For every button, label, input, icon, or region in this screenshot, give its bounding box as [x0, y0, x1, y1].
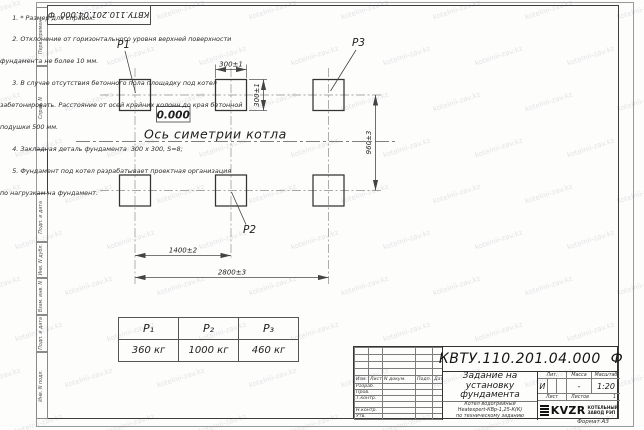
kvzr-logo-icon — [540, 405, 549, 416]
load-header-p3: P₃ — [239, 318, 299, 340]
title-line: фундамента — [460, 391, 520, 401]
massa-label: Масса — [567, 372, 592, 379]
doc-number: КВТУ.110.201.04.000 Ф — [442, 347, 619, 372]
list-label: Лист — [538, 394, 567, 401]
load-header-p2: P₂ — [179, 318, 239, 340]
load-value-p2: 1000 кг — [179, 340, 239, 362]
leader-p3 — [331, 50, 357, 91]
company-cell: KVZR КОТЕЛЬНЫЙ ЗАВОД РЭП — [538, 401, 620, 420]
masshtab-label: Масштаб — [592, 372, 620, 379]
note-line: фундамента не более 10 мм. — [0, 58, 256, 65]
point-label-p2: P2 — [243, 224, 256, 236]
lit-label: Лит. — [538, 372, 567, 379]
listov-label: Листов — [571, 394, 589, 400]
lit-value-cell: И — [538, 379, 567, 394]
listov-cell: Листов 1 — [567, 394, 620, 401]
listov-value: 1 — [613, 394, 616, 400]
lit-value: И — [538, 379, 547, 393]
masshtab-value: 1:20 — [592, 379, 620, 394]
load-value-p1: 360 кг — [119, 340, 179, 362]
change-header-row: Изм. Лист N докум. Подп. Дата — [355, 376, 443, 384]
note-line: забетонировать. Расстояние от осей крайн… — [0, 102, 256, 109]
product-description: Котел водогрейный Heatexpert-КВр-1,25-К(… — [442, 401, 537, 420]
note-line: 5. Фундамент под котел разрабатывает про… — [0, 168, 256, 175]
drawing-title: Задание на установку фундамента — [442, 372, 537, 401]
drawing-sheet: kotelnii-zav.kzkotelnii-zav.kzkotelnii-z… — [0, 0, 644, 430]
point-label-p3: P3 — [352, 37, 365, 49]
load-value-p3: 460 кг — [239, 340, 299, 362]
format-label: Формат А3 — [548, 419, 638, 425]
note-line: подушки 500 мм. — [0, 124, 256, 131]
col-izm: Изм. — [355, 376, 369, 384]
kvzr-logo-text: KVZR — [551, 404, 586, 417]
note-line: 1. * Размер для справок. — [0, 15, 256, 22]
load-table-header-row: P₁ P₂ P₃ — [119, 318, 299, 340]
dim-text-2800: 2800±3 — [218, 269, 246, 277]
note-line: по нагрузкам на фундамент. — [0, 190, 256, 197]
dim-text-960: 960±3 — [365, 131, 373, 155]
col-ndoc: N докум. — [383, 376, 416, 384]
title-block-right: Лит. Масса Масштаб И - 1:20 Лист Листов … — [537, 372, 619, 420]
company-name-line2: ЗАВОД РЭП — [587, 411, 618, 416]
massa-value: - — [567, 379, 592, 394]
col-podp: Подп. — [416, 376, 433, 384]
change-row — [355, 355, 443, 362]
change-row — [355, 362, 443, 369]
change-row — [355, 348, 443, 355]
load-table: P₁ P₂ P₃ 360 кг 1000 кг 460 кг — [118, 317, 299, 362]
company-name: КОТЕЛЬНЫЙ ЗАВОД РЭП — [587, 406, 618, 416]
row-utv: Утв. — [355, 414, 383, 420]
col-list: Лист — [369, 376, 383, 384]
col-data: Дата — [433, 376, 443, 384]
change-row — [355, 369, 443, 376]
dim-text-1400: 1400±2 — [169, 247, 198, 255]
product-line: по техническому заданию — [456, 414, 524, 420]
title-block: Изм. Лист N докум. Подп. Дата Разраб. Пр… — [353, 346, 618, 419]
notes-block: 1. * Размер для справок. 2. Отклонение о… — [0, 0, 256, 212]
note-line: 2. Отклонение от горизонтального уровня … — [0, 36, 256, 43]
lit-sub-3 — [556, 379, 566, 393]
lit-sub-2 — [547, 379, 557, 393]
note-line: 3. В случае отсутствия бетонного пола пл… — [0, 80, 256, 87]
load-table-value-row: 360 кг 1000 кг 460 кг — [119, 340, 299, 362]
load-header-p1: P₁ — [119, 318, 179, 340]
note-line: 4. Закладная деталь фундамента 300 х 300… — [0, 146, 256, 153]
change-log-table: Изм. Лист N докум. Подп. Дата Разраб. Пр… — [354, 347, 443, 420]
signature-row: Утв. — [355, 414, 443, 420]
